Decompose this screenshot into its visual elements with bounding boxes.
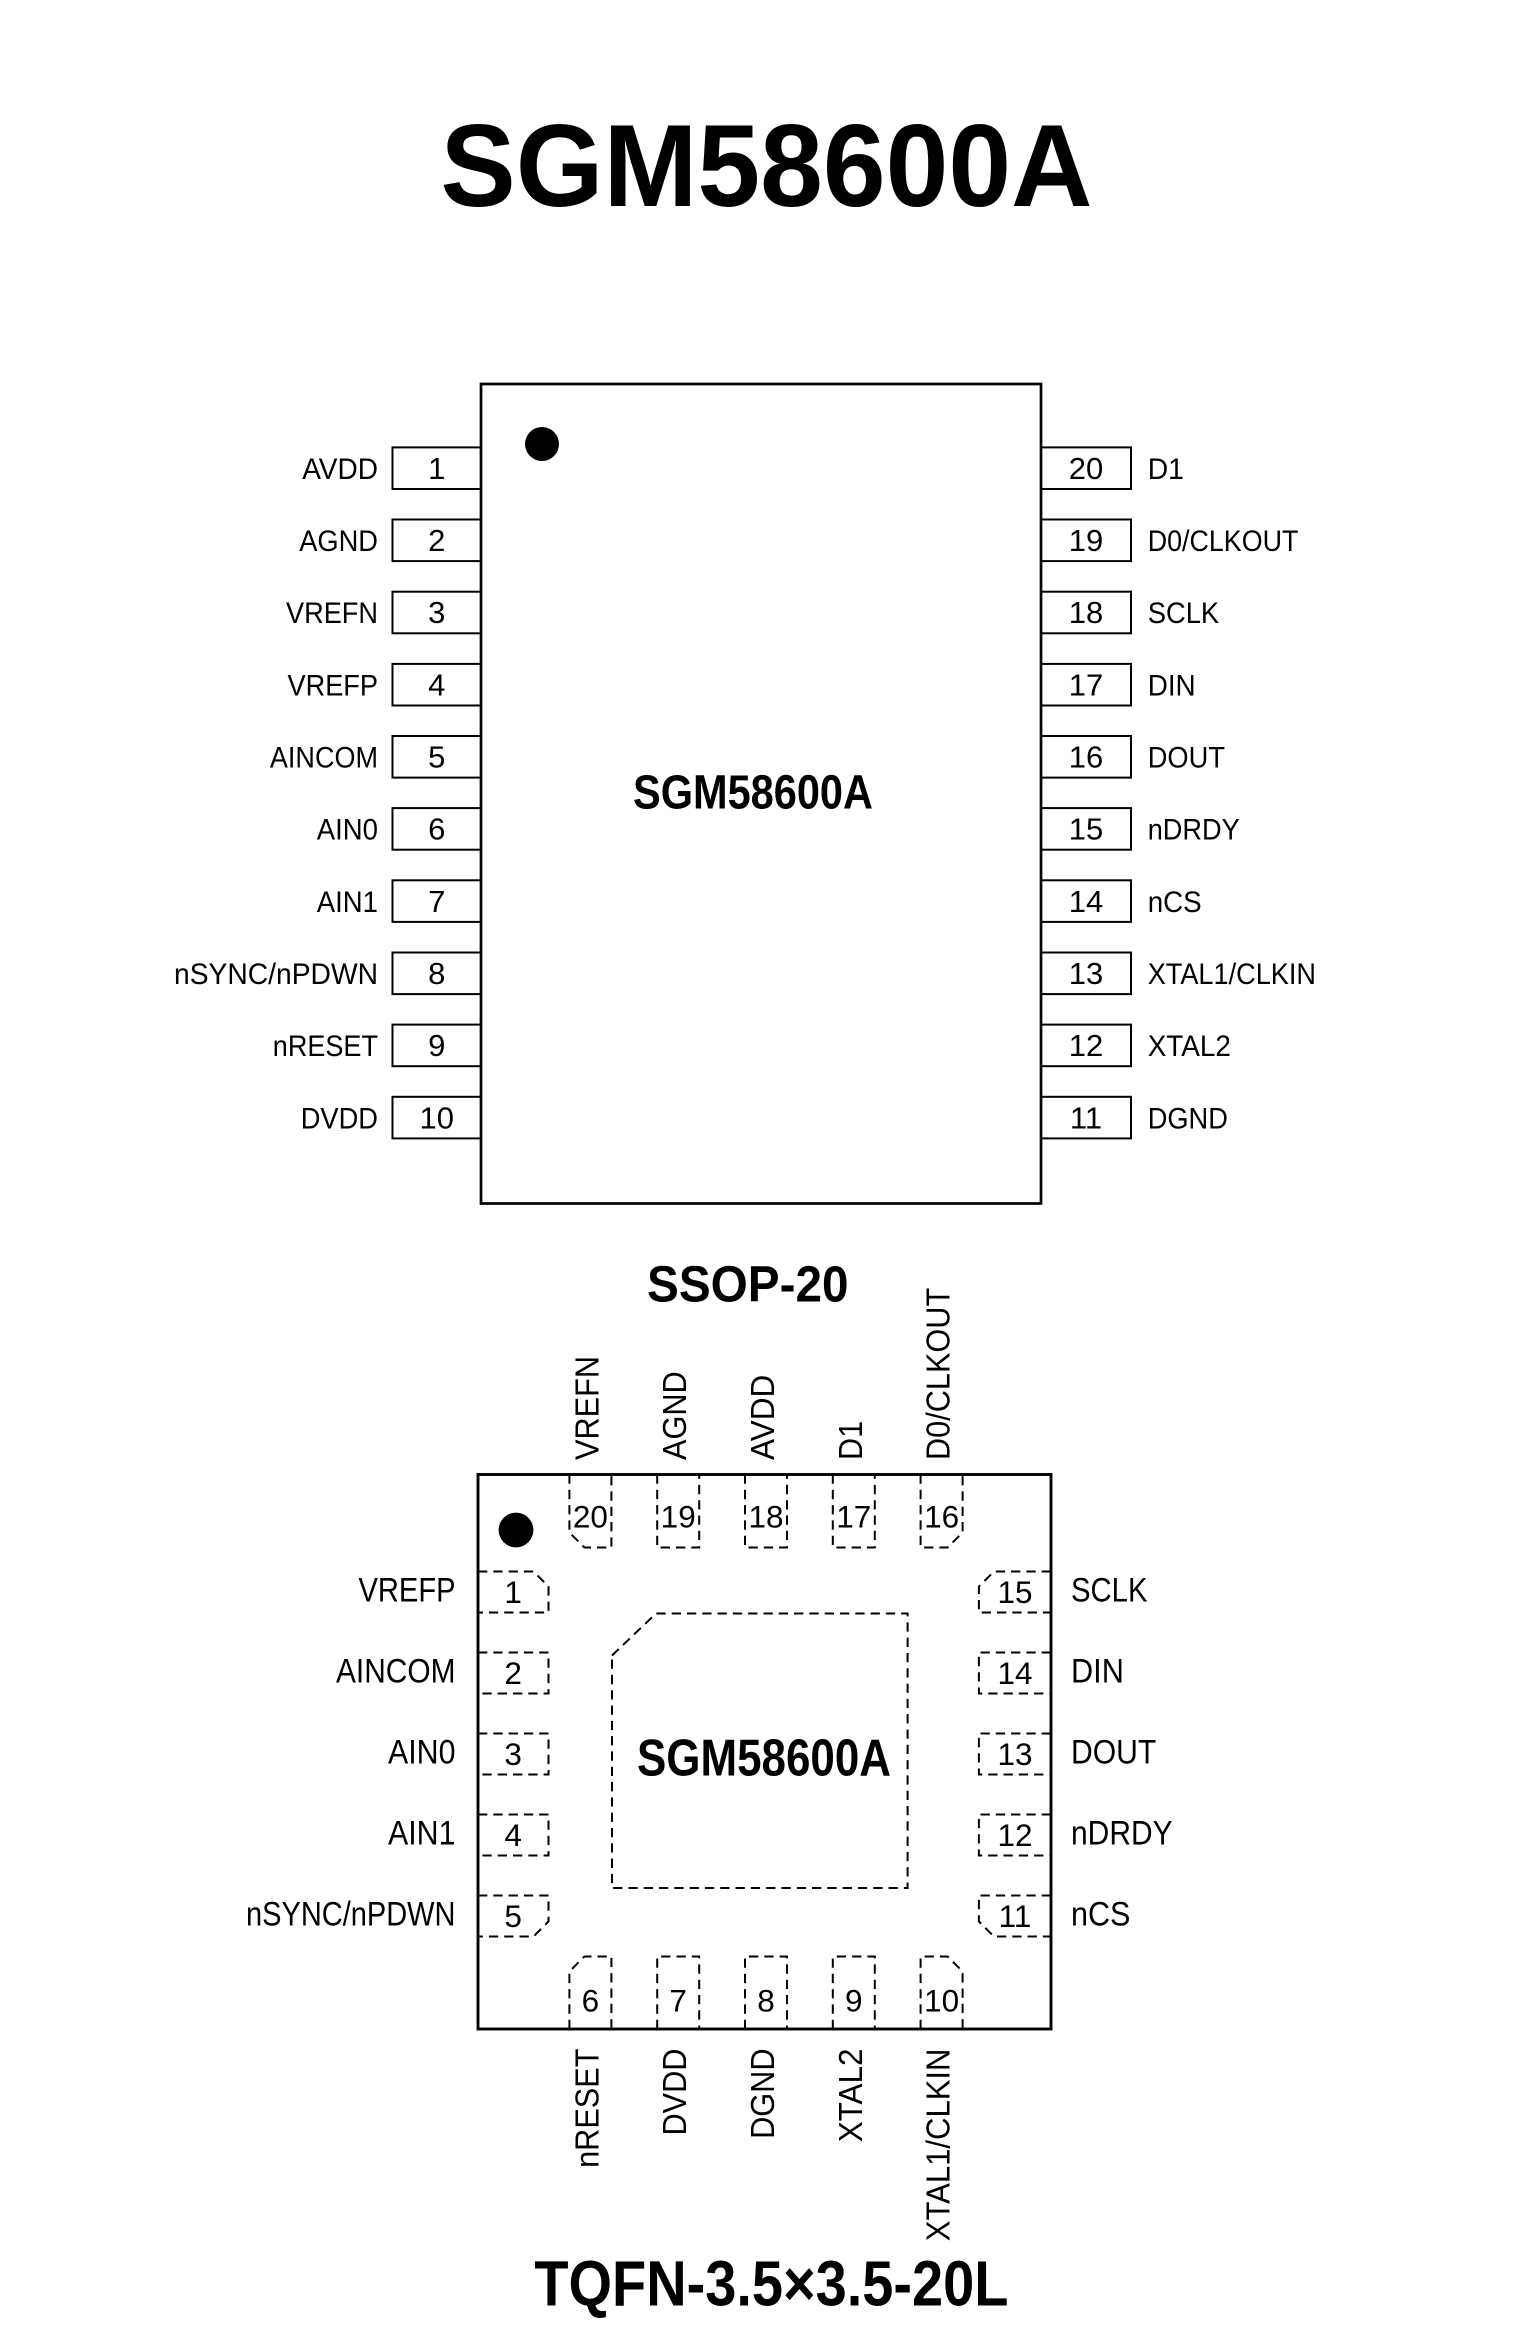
- svg-text:DOUT: DOUT: [1071, 1734, 1156, 1772]
- svg-text:DIN: DIN: [1071, 1653, 1124, 1691]
- svg-text:AIN0: AIN0: [317, 814, 378, 847]
- svg-text:12: 12: [1069, 1028, 1103, 1063]
- svg-text:nCS: nCS: [1071, 1896, 1130, 1934]
- svg-text:VREFP: VREFP: [359, 1572, 456, 1610]
- svg-text:nDRDY: nDRDY: [1148, 814, 1240, 847]
- svg-text:14: 14: [1069, 884, 1103, 919]
- svg-text:AIN1: AIN1: [388, 1815, 456, 1853]
- svg-text:10: 10: [419, 1100, 453, 1135]
- svg-text:16: 16: [1069, 740, 1103, 775]
- svg-text:VREFP: VREFP: [288, 669, 379, 702]
- svg-text:12: 12: [997, 1817, 1032, 1853]
- svg-text:7: 7: [428, 884, 445, 919]
- svg-text:18: 18: [1069, 595, 1103, 630]
- svg-text:14: 14: [997, 1655, 1032, 1691]
- svg-text:5: 5: [428, 740, 445, 775]
- svg-text:AGND: AGND: [656, 1371, 693, 1460]
- svg-text:2: 2: [428, 523, 445, 558]
- svg-text:18: 18: [748, 1499, 783, 1535]
- svg-text:8: 8: [428, 956, 445, 991]
- svg-text:AINCOM: AINCOM: [336, 1653, 456, 1691]
- svg-text:AVDD: AVDD: [302, 453, 378, 486]
- svg-text:3: 3: [428, 595, 445, 630]
- svg-text:8: 8: [757, 1983, 775, 2019]
- svg-text:15: 15: [1069, 812, 1103, 847]
- svg-text:4: 4: [504, 1817, 522, 1853]
- svg-text:17: 17: [1069, 667, 1103, 702]
- svg-text:nSYNC/nPDWN: nSYNC/nPDWN: [246, 1896, 456, 1934]
- svg-text:6: 6: [428, 812, 445, 847]
- svg-text:nRESET: nRESET: [568, 2049, 605, 2168]
- svg-text:D1: D1: [832, 1421, 869, 1460]
- svg-text:DGND: DGND: [1148, 1102, 1228, 1135]
- svg-text:SSOP-20: SSOP-20: [647, 1256, 849, 1313]
- svg-text:20: 20: [573, 1499, 608, 1535]
- svg-text:DIN: DIN: [1148, 669, 1196, 702]
- svg-text:D1: D1: [1148, 453, 1184, 486]
- svg-text:16: 16: [924, 1499, 959, 1535]
- svg-text:AVDD: AVDD: [744, 1375, 781, 1460]
- svg-text:XTAL2: XTAL2: [1148, 1030, 1231, 1063]
- svg-text:11: 11: [1070, 1100, 1102, 1135]
- svg-text:20: 20: [1069, 451, 1103, 486]
- svg-text:D0/CLKOUT: D0/CLKOUT: [920, 1288, 957, 1460]
- svg-text:6: 6: [582, 1983, 600, 2019]
- svg-text:TQFN-3.5×3.5-20L: TQFN-3.5×3.5-20L: [534, 2248, 1008, 2320]
- svg-text:AIN0: AIN0: [388, 1734, 456, 1772]
- svg-text:DVDD: DVDD: [656, 2049, 693, 2136]
- svg-text:XTAL2: XTAL2: [832, 2049, 869, 2143]
- svg-text:3: 3: [504, 1736, 522, 1772]
- svg-text:nDRDY: nDRDY: [1071, 1815, 1173, 1853]
- svg-text:1: 1: [428, 451, 445, 486]
- svg-text:9: 9: [428, 1028, 445, 1063]
- svg-text:SCLK: SCLK: [1071, 1572, 1148, 1610]
- svg-text:19: 19: [661, 1499, 696, 1535]
- svg-text:15: 15: [997, 1574, 1032, 1610]
- svg-text:nSYNC/nPDWN: nSYNC/nPDWN: [174, 958, 378, 991]
- svg-text:2: 2: [504, 1655, 522, 1691]
- svg-text:9: 9: [845, 1983, 863, 2019]
- svg-text:VREFN: VREFN: [568, 1356, 605, 1460]
- svg-text:13: 13: [997, 1736, 1032, 1772]
- svg-text:DGND: DGND: [744, 2049, 781, 2139]
- svg-text:SGM58600A: SGM58600A: [441, 101, 1093, 231]
- svg-text:XTAL1/CLKIN: XTAL1/CLKIN: [920, 2049, 957, 2242]
- svg-text:AGND: AGND: [299, 525, 378, 558]
- svg-text:XTAL1/CLKIN: XTAL1/CLKIN: [1148, 958, 1316, 991]
- svg-text:11: 11: [999, 1898, 1032, 1934]
- svg-text:nRESET: nRESET: [273, 1030, 378, 1063]
- svg-text:SGM58600A: SGM58600A: [637, 1729, 891, 1787]
- svg-text:DOUT: DOUT: [1148, 742, 1225, 775]
- svg-text:4: 4: [428, 667, 445, 702]
- svg-text:D0/CLKOUT: D0/CLKOUT: [1148, 525, 1299, 558]
- svg-text:10: 10: [924, 1983, 959, 2019]
- svg-text:7: 7: [669, 1983, 687, 2019]
- svg-text:DVDD: DVDD: [301, 1102, 378, 1135]
- svg-text:VREFN: VREFN: [286, 597, 378, 630]
- svg-text:nCS: nCS: [1148, 886, 1202, 919]
- svg-text:AIN1: AIN1: [317, 886, 378, 919]
- svg-text:1: 1: [504, 1574, 522, 1610]
- svg-text:13: 13: [1069, 956, 1103, 991]
- svg-text:AINCOM: AINCOM: [270, 742, 378, 775]
- svg-text:5: 5: [504, 1898, 522, 1934]
- svg-text:SGM58600A: SGM58600A: [633, 766, 873, 819]
- svg-text:19: 19: [1069, 523, 1103, 558]
- svg-text:SCLK: SCLK: [1148, 597, 1220, 630]
- svg-text:17: 17: [836, 1499, 871, 1535]
